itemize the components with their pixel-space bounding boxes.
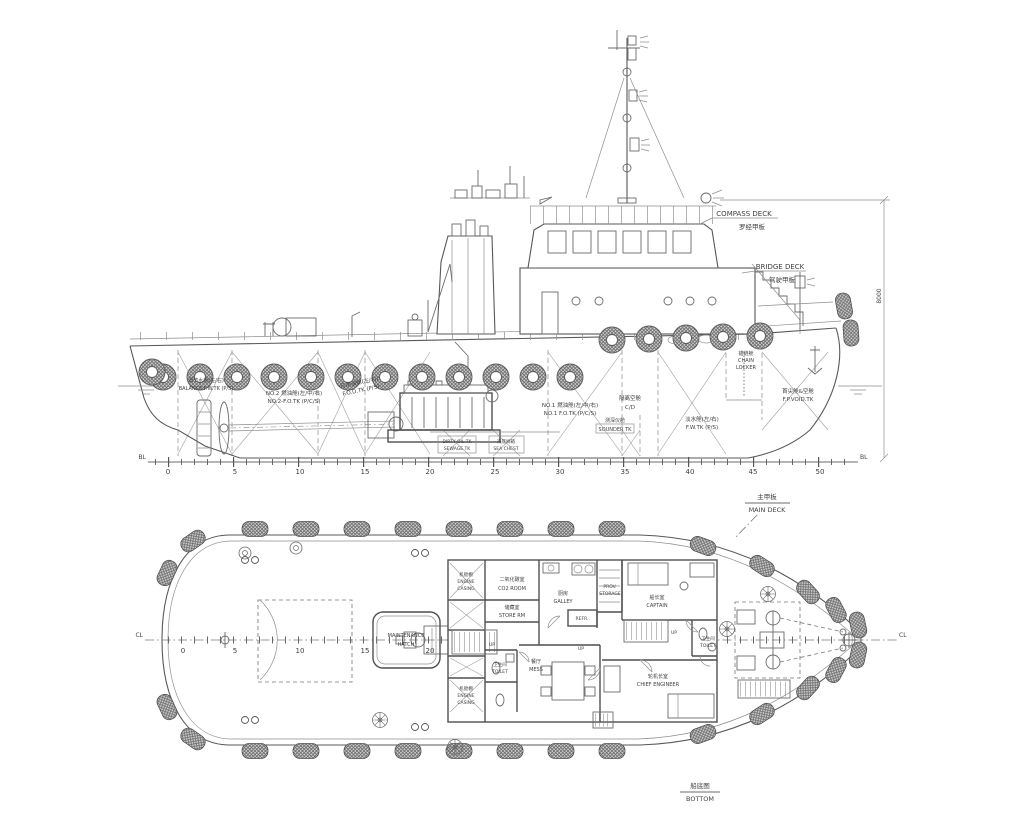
svg-text:驾驶甲板: 驾驶甲板 [769,275,796,284]
svg-text:船长室: 船长室 [649,594,664,601]
svg-text:测深仪舱: 测深仪舱 [605,417,625,424]
label-refr: REFR. [576,616,589,622]
svg-text:主甲板: 主甲板 [757,492,777,501]
svg-text:NO.2 燃油舱(左/中/右): NO.2 燃油舱(左/中/右) [266,389,322,397]
svg-text:ENGINE: ENGINE [457,579,474,585]
svg-text:30: 30 [556,468,565,476]
svg-text:机舱棚: 机舱棚 [459,571,473,578]
svg-text:SEWAGE TK: SEWAGE TK [444,446,471,452]
label-sea-chest: 海底阀箱 SEA CHEST [489,436,524,453]
svg-text:F.W.TK (P/S): F.W.TK (P/S) [686,425,718,431]
svg-text:淡水舱(左/右): 淡水舱(左/右) [685,415,719,423]
label-up-3: UP [578,646,584,652]
label-engine-casing-bottom: 机舱棚 ENGINE CASING [457,685,475,706]
svg-text:LOCKER: LOCKER [736,365,756,371]
svg-text:15: 15 [361,647,370,655]
svg-text:CHAIN: CHAIN [738,358,754,364]
svg-text:5: 5 [233,647,237,655]
label-dirty-oil-tank: DIRTY OIL TK SEWAGE TK [438,436,476,453]
baseline-label-left: BL [139,454,147,461]
svg-text:35: 35 [621,468,630,476]
svg-text:0: 0 [166,468,170,476]
svg-text:10: 10 [296,647,305,655]
svg-text:ENGINE: ENGINE [457,693,474,699]
baseline-ruler: BL BL 05 1015 2025 3035 4045 50 [139,454,869,476]
svg-text:BALANCE F.W.TK (P/S): BALANCE F.W.TK (P/S) [179,386,234,392]
svg-text:机舱棚: 机舱棚 [459,685,473,692]
label-chain-locker: 锚链舱 CHAIN LOCKER [736,350,756,371]
svg-text:C/D: C/D [625,405,635,411]
svg-text:STORE RM: STORE RM [499,613,525,619]
svg-text:轮机长室: 轮机长室 [648,673,668,680]
svg-text:25: 25 [491,468,500,476]
svg-text:COMPASS DECK: COMPASS DECK [716,210,772,218]
svg-text:TOILET: TOILET [491,669,508,675]
centerline-label-left: CL [135,632,143,639]
dimension-text: 8000 [876,288,883,303]
svg-text:海底阀箱: 海底阀箱 [497,438,515,445]
svg-text:隔离空舱: 隔离空舱 [619,394,642,402]
svg-text:储藏室: 储藏室 [504,604,519,611]
mast [586,30,684,203]
svg-text:调节水舱(左/右): 调节水舱(左/右) [188,377,224,384]
label-cofferdam: 隔离空舱 C/D [619,394,642,411]
side-frame-numbers: 05 1015 2025 3035 4045 50 [166,468,825,476]
aft-deck-fittings [263,312,422,337]
label-compass-deck: COMPASS DECK 罗经甲板 [700,210,778,231]
svg-text:0: 0 [181,647,185,655]
svg-text:NO.1 F.O.TK (P/C/S): NO.1 F.O.TK (P/C/S) [544,411,596,417]
svg-text:CASING: CASING [457,700,475,706]
svg-text:DIRTY OIL TK: DIRTY OIL TK [442,439,472,445]
svg-text:厨房: 厨房 [558,590,568,597]
label-main-deck: 主甲板 MAIN DECK [735,492,790,538]
label-engine-casing-top: 机舱棚 ENGINE CASING [457,571,475,592]
label-sounder-tank: 测深仪舱 SOUNDER TK [596,417,634,433]
svg-text:首尖舱&空舱: 首尖舱&空舱 [782,387,814,395]
svg-text:PROV.: PROV. [603,584,616,590]
plan-view: CL CL 05 1015 2025 3035 [135,492,907,803]
svg-text:20: 20 [426,468,435,476]
label-up-2: UP [489,642,495,648]
machinery-side [197,342,560,456]
svg-text:二氧化碳室: 二氧化碳室 [499,576,524,583]
svg-text:锚链舱: 锚链舱 [738,350,753,357]
superstructure [428,166,833,334]
svg-text:45: 45 [749,468,758,476]
svg-text:罗经甲板: 罗经甲板 [739,222,766,231]
svg-text:餐厅: 餐厅 [531,658,541,665]
svg-text:船底图: 船底图 [690,781,710,790]
svg-text:SOUNDER TK: SOUNDER TK [599,427,633,433]
svg-text:HATCH: HATCH [398,642,415,648]
svg-text:10: 10 [296,468,305,476]
tugboat-general-arrangement-drawing: BL BL 05 1015 2025 3035 4045 50 8000 COM… [0,0,1024,824]
svg-text:卫生间: 卫生间 [493,661,507,668]
svg-text:50: 50 [816,468,825,476]
svg-text:40: 40 [686,468,695,476]
svg-text:卫生间: 卫生间 [701,635,715,642]
label-bottom: 船底图 BOTTOM [680,781,720,803]
side-view: BL BL 05 1015 2025 3035 4045 50 8000 COM… [118,30,890,476]
baseline-label-right: BL [860,454,868,461]
label-maintenance-hatch: MAINTENANCE HATCH [388,633,425,648]
svg-text:STORAGE: STORAGE [599,591,621,597]
svg-text:TOILET: TOILET [699,643,716,649]
svg-text:MAIN DECK: MAIN DECK [749,506,787,514]
drawing-svg: BL BL 05 1015 2025 3035 4045 50 8000 COM… [0,0,1024,824]
svg-text:BOTTOM: BOTTOM [686,795,714,803]
svg-text:5: 5 [233,468,237,476]
svg-text:CAPTAIN: CAPTAIN [646,603,667,609]
svg-text:15: 15 [361,468,370,476]
label-no2-fo-tank: NO.2 燃油舱(左/中/右) NO.2-F.O.TK (P/C/S) [266,389,322,405]
svg-text:BRIDGE DECK: BRIDGE DECK [756,263,805,271]
label-up-1: UP [671,630,677,636]
svg-text:NO.1 燃油舱(左/中/右): NO.1 燃油舱(左/中/右) [542,401,598,409]
svg-text:MAINTENANCE: MAINTENANCE [388,633,425,639]
svg-text:F.P.VOID.TK: F.P.VOID.TK [783,397,814,403]
svg-text:NO.2-F.O.TK (P/C/S): NO.2-F.O.TK (P/C/S) [268,399,321,405]
svg-text:SEA CHEST: SEA CHEST [493,446,518,452]
svg-text:CASING: CASING [457,586,475,592]
svg-text:GALLEY: GALLEY [553,599,573,605]
svg-text:MESS: MESS [529,667,543,673]
centerline-label-right: CL [899,632,907,639]
label-fw-tank: 淡水舱(左/右) F.W.TK (P/S) [685,415,719,431]
svg-text:CO2 ROOM: CO2 ROOM [498,586,526,592]
svg-text:CHIEF ENGINEER: CHIEF ENGINEER [637,682,680,688]
